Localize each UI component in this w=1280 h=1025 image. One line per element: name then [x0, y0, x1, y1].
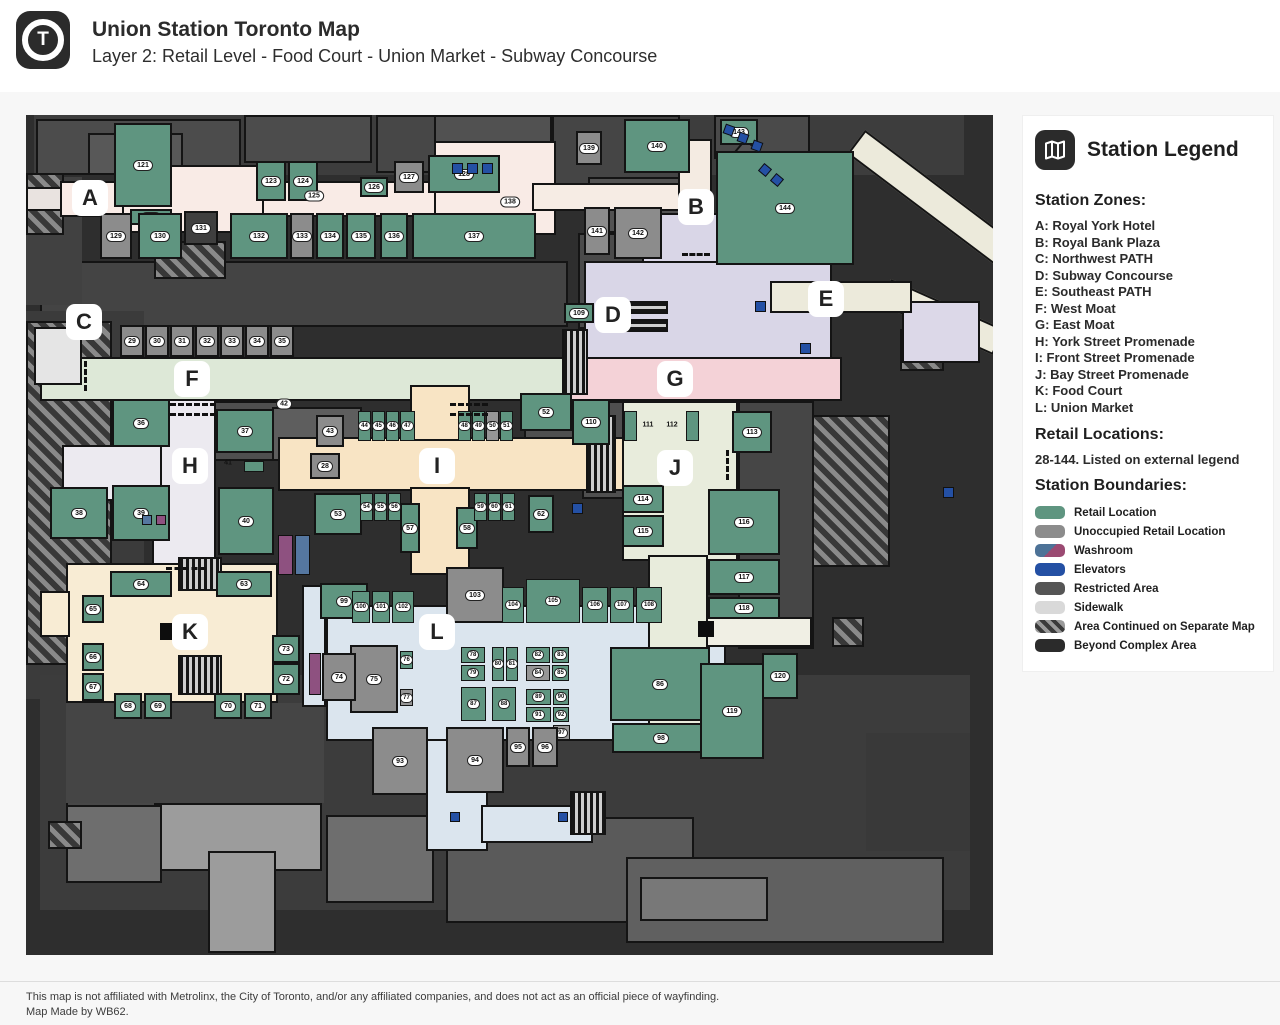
retail-kiosk-85: 85	[552, 665, 569, 681]
retail-kiosk-91: 91	[526, 707, 551, 722]
logo-ring: T	[22, 19, 64, 61]
zone-corridor-61	[40, 591, 70, 637]
page-header: T Union Station Toronto Map Layer 2: Ret…	[0, 0, 1280, 92]
zone-list: A: Royal York HotelB: Royal Bank PlazaC:…	[1035, 218, 1261, 416]
retail-128: 128	[428, 155, 500, 193]
boundary-label: Washroom	[1074, 545, 1133, 557]
map-marker-icon-213	[698, 621, 714, 637]
retail-unoccupied-74: 74	[322, 653, 356, 701]
retail-number: 72	[278, 674, 294, 685]
washroom-194	[295, 535, 310, 575]
retail-39: 39	[112, 485, 170, 541]
ttc-logo: T	[16, 11, 70, 69]
retail-kiosk-106: 106	[582, 587, 608, 623]
continued-area-37	[812, 415, 890, 567]
retail-number: 100	[353, 602, 369, 612]
boundary-row: Area Continued on Separate Map	[1035, 617, 1261, 636]
retail-label-111: 111	[643, 422, 654, 429]
retail-67: 67	[82, 673, 104, 701]
retail-kiosk-56: 56	[388, 493, 401, 521]
retail-number: 43	[322, 426, 338, 437]
retail-number: 94	[467, 755, 483, 766]
retail-restricted-131: 131	[184, 211, 218, 245]
retail-unoccupied-139: 139	[576, 131, 602, 165]
building-area-29	[640, 877, 768, 921]
retail-note: 28-144. Listed on external legend	[1035, 452, 1261, 467]
boundary-row: Retail Location	[1035, 503, 1261, 522]
retail-number: 107	[614, 600, 630, 610]
retail-number: 131	[191, 223, 211, 234]
retail-unoccupied-34: 34	[245, 325, 269, 357]
zone-list-item: F: West Moat	[1035, 301, 1261, 318]
building-area-25	[326, 815, 434, 903]
retail-132: 132	[230, 213, 288, 259]
dashed-passage-221	[726, 450, 729, 480]
building-area-21	[66, 703, 324, 803]
retail-115: 115	[622, 515, 664, 547]
disclaimer-text: This map is not affiliated with Metrolin…	[26, 990, 719, 1005]
retail-number: 68	[120, 701, 136, 712]
retail-number: 127	[399, 172, 419, 183]
zone-list-item: J: Bay Street Promenade	[1035, 367, 1261, 384]
retail-number: 71	[250, 701, 266, 712]
retail-number: 84	[532, 668, 545, 678]
retail-unoccupied-133: 133	[290, 213, 314, 259]
elevator-205	[450, 812, 460, 822]
retail-kiosk-45: 45	[372, 411, 385, 441]
retail-label-41: 41	[224, 460, 232, 467]
retail-110: 110	[572, 399, 610, 445]
washroom-197	[156, 515, 166, 525]
retail-unoccupied-95: 95	[506, 727, 530, 767]
boundary-swatch	[1035, 620, 1065, 633]
retail-69: 69	[144, 693, 172, 719]
boundary-row: Restricted Area	[1035, 579, 1261, 598]
retail-kiosk-90: 90	[553, 689, 569, 705]
retail-number: 104	[505, 600, 521, 610]
retail-number: 59	[474, 502, 487, 512]
retail-121: 121	[114, 123, 172, 207]
retail-number: 120	[770, 671, 790, 682]
retail-126: 126	[360, 177, 388, 197]
retail-number: 88	[498, 699, 511, 709]
retail-number: 90	[555, 692, 568, 702]
retail-number: 136	[384, 231, 404, 242]
retail-number: 89	[532, 692, 545, 702]
retail-123: 123	[256, 161, 286, 201]
retail-unoccupied-127: 127	[394, 161, 424, 193]
retail-63: 63	[216, 571, 272, 597]
retail-120: 120	[762, 653, 798, 699]
retail-number: 85	[554, 668, 567, 678]
retail-kiosk-108: 108	[636, 587, 662, 623]
retail-unoccupied-93: 93	[372, 727, 428, 795]
retail-label-125: 125	[304, 191, 324, 202]
retail-kiosk-192	[686, 411, 699, 441]
retail-kiosk-191	[624, 411, 637, 441]
boundaries-heading: Station Boundaries:	[1035, 477, 1261, 495]
retail-label-112: 112	[666, 422, 677, 429]
boundary-label: Retail Location	[1074, 507, 1156, 519]
retail-number: 86	[652, 679, 668, 690]
retail-number: 82	[532, 650, 545, 660]
retail-kiosk-55: 55	[374, 493, 387, 521]
retail-number: 69	[150, 701, 166, 712]
retail-73: 73	[272, 635, 300, 663]
retail-unoccupied-35: 35	[270, 325, 294, 357]
retail-137: 137	[412, 213, 536, 259]
retail-unoccupied-129: 129	[100, 213, 132, 259]
dashed-passage-216	[450, 403, 488, 406]
retail-number: 101	[373, 602, 389, 612]
retail-unoccupied-141: 141	[584, 207, 610, 255]
retail-number: 141	[587, 226, 607, 237]
zone-corridor-45	[26, 187, 62, 211]
boundary-row: Elevators	[1035, 560, 1261, 579]
retail-kiosk-79: 79	[461, 665, 485, 681]
retail-kiosk-54: 54	[360, 493, 373, 521]
retail-number: 139	[579, 143, 599, 154]
retail-number: 30	[149, 336, 165, 347]
retail-number: 102	[395, 602, 411, 612]
retail-number: 73	[278, 644, 294, 655]
page-subtitle: Layer 2: Retail Level - Food Court - Uni…	[92, 46, 657, 67]
credit-text: Map Made by WB62.	[26, 1005, 719, 1020]
retail-unoccupied-75: 75	[350, 645, 398, 713]
retail-number: 51	[500, 421, 513, 431]
retail-number: 46	[386, 421, 399, 431]
legend-header: Station Legend	[1023, 116, 1273, 182]
logo-letter: T	[37, 29, 49, 51]
retail-117: 117	[708, 559, 780, 595]
retail-number: 48	[458, 421, 471, 431]
zone-label-C: C	[66, 304, 102, 340]
retail-37: 37	[216, 409, 274, 453]
retail-unoccupied-30: 30	[145, 325, 169, 357]
zone-corridor-51	[902, 301, 980, 363]
retail-number: 31	[174, 336, 190, 347]
retail-kiosk-87: 87	[461, 687, 486, 721]
retail-number: 115	[633, 526, 652, 537]
retail-number: 33	[224, 336, 240, 347]
retail-number: 119	[722, 706, 741, 717]
retail-kiosk-51: 51	[500, 411, 513, 441]
boundary-row: Unoccupied Retail Location	[1035, 522, 1261, 541]
retail-label-138: 138	[500, 197, 520, 208]
zone-list-item: C: Northwest PATH	[1035, 251, 1261, 268]
building-area-23	[208, 851, 276, 953]
dashed-passage-219	[166, 567, 206, 570]
retail-number: 134	[320, 231, 340, 242]
retail-number: 93	[392, 756, 408, 767]
retail-number: 140	[647, 141, 667, 152]
boundary-swatch	[1035, 563, 1065, 576]
retail-114: 114	[622, 485, 664, 513]
retail-kiosk-104: 104	[502, 587, 524, 623]
washroom-195	[309, 653, 321, 695]
retail-119: 119	[700, 663, 764, 759]
retail-57: 57	[400, 503, 420, 553]
boundary-swatch	[1035, 582, 1065, 595]
boundary-swatch	[1035, 601, 1065, 614]
retail-number: 129	[106, 231, 126, 242]
retail-113: 113	[732, 411, 772, 453]
zone-label-F: F	[174, 361, 210, 397]
retail-number: 44	[358, 421, 371, 431]
elevator-203	[572, 503, 583, 514]
retail-66: 66	[82, 643, 104, 671]
retail-number: 130	[150, 231, 170, 242]
zone-corridor-54	[570, 357, 842, 401]
boundary-row: Washroom	[1035, 541, 1261, 560]
retail-kiosk-82: 82	[526, 647, 550, 663]
boundary-swatch	[1035, 639, 1065, 652]
retail-number: 28	[317, 461, 333, 472]
retail-number: 92	[555, 710, 568, 720]
retail-109: 109	[564, 303, 594, 323]
retail-unoccupied-103: 103	[446, 567, 504, 623]
zone-list-item: D: Subway Concourse	[1035, 268, 1261, 285]
stairs-78	[570, 791, 606, 835]
stairs-72	[178, 655, 222, 695]
retail-number: 70	[220, 701, 236, 712]
retail-number: 99	[336, 596, 352, 607]
retail-118: 118	[708, 597, 780, 619]
retail-kiosk-190	[244, 461, 264, 472]
retail-kiosk-59: 59	[474, 493, 487, 521]
retail-number: 29	[124, 336, 140, 347]
retail-number: 45	[372, 421, 385, 431]
retail-number: 64	[133, 579, 149, 590]
retail-number: 36	[133, 418, 149, 429]
zone-label-L: L	[419, 614, 455, 650]
zone-label-A: A	[72, 180, 108, 216]
retail-kiosk-107: 107	[610, 587, 634, 623]
retail-number: 52	[538, 407, 554, 418]
retail-number: 32	[199, 336, 215, 347]
retail-kiosk-89: 89	[526, 689, 551, 705]
dashed-passage-217	[450, 413, 488, 416]
retail-unoccupied-29: 29	[120, 325, 144, 357]
boundaries-list: Retail LocationUnoccupied Retail Locatio…	[1035, 503, 1261, 655]
zone-label-I: I	[419, 448, 455, 484]
retail-kiosk-102: 102	[392, 591, 414, 623]
retail-number: 121	[133, 160, 153, 171]
page-footer: This map is not affiliated with Metrolin…	[26, 990, 719, 1020]
retail-kiosk-60: 60	[488, 493, 501, 521]
retail-62: 62	[528, 495, 554, 533]
retail-unoccupied-32: 32	[195, 325, 219, 357]
boundary-label: Sidewalk	[1074, 602, 1123, 614]
elevator-198	[452, 163, 463, 174]
boundary-label: Restricted Area	[1074, 583, 1159, 595]
zone-list-item: K: Food Court	[1035, 383, 1261, 400]
retail-kiosk-105: 105	[526, 579, 580, 623]
retail-number: 113	[742, 427, 761, 438]
washroom-196	[142, 515, 152, 525]
zone-list-item: B: Royal Bank Plaza	[1035, 235, 1261, 252]
retail-number: 55	[374, 502, 387, 512]
retail-number: 118	[734, 603, 753, 614]
retail-unoccupied-31: 31	[170, 325, 194, 357]
retail-kiosk-47: 47	[400, 411, 415, 441]
elevator-200	[482, 163, 493, 174]
boundary-label: Elevators	[1074, 564, 1126, 576]
boundary-label: Area Continued on Separate Map	[1074, 621, 1255, 633]
retail-number: 137	[464, 231, 484, 242]
retail-number: 98	[653, 733, 669, 744]
building-area-3	[244, 115, 372, 163]
retail-number: 106	[587, 600, 603, 610]
retail-65: 65	[82, 595, 104, 623]
retail-98: 98	[612, 723, 710, 753]
zone-label-B: B	[678, 189, 714, 225]
retail-number: 135	[351, 231, 371, 242]
retail-number: 50	[486, 421, 499, 431]
retail-number: 47	[401, 421, 414, 431]
retail-kiosk-80: 80	[492, 647, 504, 681]
zone-list-item: I: Front Street Promenade	[1035, 350, 1261, 367]
map-icon	[1035, 130, 1075, 170]
retail-134: 134	[316, 213, 344, 259]
retail-unoccupied-142: 142	[614, 207, 662, 259]
dashed-passage-220	[84, 361, 87, 391]
retail-number: 60	[488, 502, 501, 512]
continued-area-38	[832, 617, 864, 647]
retail-number: 80	[492, 659, 505, 669]
retail-number: 65	[85, 604, 101, 615]
boundary-swatch	[1035, 544, 1065, 557]
retail-38: 38	[50, 487, 108, 539]
retail-kiosk-unoccupied-84: 84	[526, 665, 550, 681]
retail-number: 78	[467, 650, 480, 660]
retail-number: 103	[465, 590, 485, 601]
retail-number: 81	[506, 659, 519, 669]
building-area-28	[866, 733, 970, 851]
retail-number: 74	[331, 672, 347, 683]
zone-list-item: G: East Moat	[1035, 317, 1261, 334]
retail-number: 66	[85, 652, 101, 663]
retail-number: 123	[261, 176, 281, 187]
legend-panel: Station Legend Station Zones: A: Royal Y…	[1022, 115, 1274, 672]
boundary-swatch	[1035, 506, 1065, 519]
retail-number: 87	[467, 699, 480, 709]
retail-72: 72	[272, 663, 300, 695]
retail-number: 116	[734, 517, 753, 528]
elevator-204	[943, 487, 954, 498]
zone-corridor-68	[706, 617, 812, 647]
footer-divider	[0, 981, 1280, 982]
retail-unoccupied-33: 33	[220, 325, 244, 357]
retail-number: 77	[400, 693, 413, 703]
retail-number: 62	[533, 509, 549, 520]
retail-number: 49	[472, 421, 485, 431]
zone-corridor-53	[40, 357, 588, 401]
retail-number: 75	[366, 674, 382, 685]
retail-136: 136	[380, 213, 408, 259]
retail-kiosk-44: 44	[358, 411, 371, 441]
retail-86: 86	[610, 647, 710, 721]
retail-144: 144	[716, 151, 854, 265]
retail-number: 63	[236, 579, 252, 590]
boundary-label: Unoccupied Retail Location	[1074, 526, 1225, 538]
elevator-202	[800, 343, 811, 354]
retail-number: 114	[633, 494, 652, 505]
zone-label-K: K	[172, 614, 208, 650]
retail-kiosk-61: 61	[502, 493, 515, 521]
elevator-206	[558, 812, 568, 822]
zone-label-J: J	[657, 450, 693, 486]
retail-130: 130	[138, 213, 182, 259]
retail-number: 105	[545, 596, 561, 606]
retail-kiosk-88: 88	[492, 687, 516, 721]
boundary-row: Sidewalk	[1035, 598, 1261, 617]
retail-unoccupied-43: 43	[316, 415, 344, 447]
zones-heading: Station Zones:	[1035, 192, 1261, 210]
station-map: 1211221231241261281301321341351361371401…	[26, 115, 993, 955]
retail-68: 68	[114, 693, 142, 719]
retail-116: 116	[708, 489, 780, 555]
retail-70: 70	[214, 693, 242, 719]
zone-label-E: E	[808, 281, 844, 317]
dashed-passage-218	[682, 253, 710, 256]
zone-list-item: L: Union Market	[1035, 400, 1261, 417]
retail-number: 142	[628, 228, 648, 239]
stairs-73	[562, 329, 588, 395]
retail-kiosk-100: 100	[352, 591, 370, 623]
retail-number: 132	[249, 231, 269, 242]
retail-53: 53	[314, 493, 362, 535]
page-title: Union Station Toronto Map	[92, 18, 360, 42]
retail-number: 54	[360, 502, 373, 512]
elevator-199	[467, 163, 478, 174]
retail-kiosk-92: 92	[553, 707, 569, 722]
retail-64: 64	[110, 571, 172, 597]
retail-number: 83	[554, 650, 567, 660]
retail-label-42: 42	[276, 399, 292, 410]
retail-number: 108	[641, 600, 657, 610]
retail-number: 67	[85, 682, 101, 693]
retail-kiosk-76: 76	[400, 651, 413, 669]
retail-kiosk-83: 83	[552, 647, 569, 663]
retail-140: 140	[624, 119, 690, 173]
retail-number: 35	[274, 336, 290, 347]
retail-number: 144	[775, 203, 795, 214]
retail-71: 71	[244, 693, 272, 719]
retail-number: 117	[734, 572, 753, 583]
elevator-201	[755, 301, 766, 312]
retail-number: 57	[402, 523, 418, 534]
retail-kiosk-81: 81	[506, 647, 518, 681]
retail-number: 126	[364, 182, 384, 193]
retail-unoccupied-28: 28	[310, 453, 340, 479]
retail-number: 61	[502, 502, 515, 512]
retail-kiosk-unoccupied-77: 77	[400, 689, 413, 706]
boundary-swatch	[1035, 525, 1065, 538]
zone-label-D: D	[595, 297, 631, 333]
zone-list-item: H: York Street Promenade	[1035, 334, 1261, 351]
retail-number: 95	[510, 742, 526, 753]
retail-number: 124	[293, 176, 313, 187]
retail-unoccupied-96: 96	[532, 727, 558, 767]
zone-list-item: A: Royal York Hotel	[1035, 218, 1261, 235]
retail-number: 53	[330, 509, 346, 520]
retail-number: 91	[532, 710, 545, 720]
dashed-passage-214	[170, 403, 216, 406]
retail-unoccupied-94: 94	[446, 727, 504, 793]
legend-title: Station Legend	[1087, 138, 1239, 162]
retail-number: 76	[400, 655, 413, 665]
